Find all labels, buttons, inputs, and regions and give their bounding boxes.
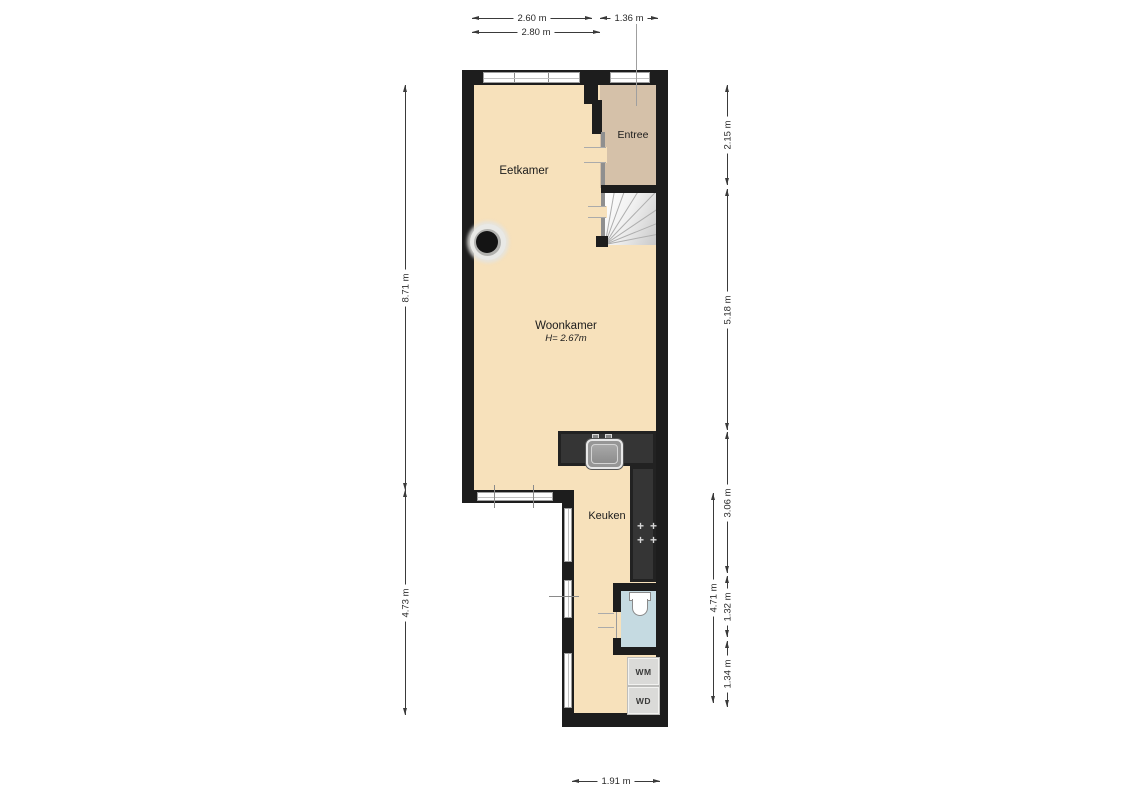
wall-left	[462, 70, 474, 503]
dimension-right-seg2: 5.18 m	[727, 189, 728, 430]
wall-entree-jog	[592, 100, 602, 134]
dryer-label: WD	[636, 696, 651, 706]
dimension-right-seg3: 3.06 m	[727, 432, 728, 573]
stove-burner-icon: +	[634, 533, 647, 547]
dimension-label: 8.71 m	[401, 269, 412, 306]
wood-stove-flue	[476, 231, 498, 253]
dimension-top-lower: 2.80 m	[472, 32, 600, 33]
dimension-top-upper-right: 1.36 m	[600, 18, 658, 19]
window-frame-divider	[548, 73, 549, 82]
sink-icon	[586, 439, 623, 469]
wall-bottom	[562, 713, 668, 727]
window-keuken-3	[564, 653, 572, 708]
window-frame-divider	[533, 485, 534, 508]
door-opening-entree	[599, 147, 607, 163]
wall-stair-stub	[596, 236, 608, 247]
dimension-label: 1.36 m	[610, 13, 647, 24]
dimension-right-seg1: 2.15 m	[727, 85, 728, 185]
extension-line	[636, 22, 637, 106]
dimension-label: 1.34 m	[723, 655, 734, 692]
window-top-entree	[610, 72, 650, 83]
dimension-label: 4.73 m	[401, 584, 412, 621]
sink-basin	[591, 444, 618, 464]
window-mid-step	[477, 492, 553, 501]
dryer: WD	[627, 686, 660, 715]
dimension-top-upper-left: 2.60 m	[472, 18, 592, 19]
door-opening-toilet	[613, 612, 621, 638]
dimension-left-lower: 4.73 m	[405, 490, 406, 715]
wall-right	[656, 70, 668, 727]
stove-burner-icon: +	[647, 533, 660, 547]
room-label-entree: Entree	[603, 129, 663, 141]
wall-toilet-bottom	[613, 647, 668, 655]
toilet-bowl-icon	[632, 599, 648, 616]
dimension-label: 1.32 m	[723, 588, 734, 625]
door-leaf-line	[616, 612, 617, 638]
dimension-label: 2.15 m	[723, 116, 734, 153]
floorplan-canvas: + + + + WM WD Eetkamer Entree Woonkamer …	[0, 0, 1131, 800]
window-top-eetkamer	[483, 72, 580, 83]
door-jamb-mark	[584, 147, 606, 148]
dimension-left-upper: 8.71 m	[405, 85, 406, 490]
room-label-woonkamer: Woonkamer	[516, 320, 616, 332]
door-jamb-mark	[598, 627, 614, 628]
window-keuken-2	[564, 580, 572, 618]
window-frame-divider	[549, 596, 579, 597]
room-label-woonkamer-height: H= 2.67m	[516, 333, 616, 344]
dimension-label: 3.06 m	[723, 484, 734, 521]
washing-machine-label: WM	[635, 667, 651, 677]
dimension-label: 4.71 m	[709, 579, 720, 616]
stove-burner-icon: +	[647, 519, 660, 533]
dimension-label: 2.60 m	[513, 13, 550, 24]
door-jamb-mark	[588, 217, 606, 218]
dimension-right-inner: 4.71 m	[713, 493, 714, 703]
dimension-label: 1.91 m	[597, 776, 634, 787]
room-label-eetkamer: Eetkamer	[474, 165, 574, 177]
window-frame-divider	[494, 485, 495, 508]
staircase	[605, 193, 656, 245]
dimension-label: 5.18 m	[723, 291, 734, 328]
stove-burners-icon: + + + +	[634, 519, 660, 547]
door-jamb-mark	[598, 613, 614, 614]
door-jamb-mark	[588, 206, 606, 207]
door-jamb-mark	[584, 162, 606, 163]
washing-machine: WM	[627, 657, 660, 686]
dimension-bottom: 1.91 m	[572, 781, 660, 782]
dimension-right-seg5: 1.34 m	[727, 641, 728, 707]
window-frame-divider	[514, 73, 515, 82]
dimension-right-seg4: 1.32 m	[727, 576, 728, 637]
dimension-label: 2.80 m	[517, 27, 554, 38]
room-label-keuken: Keuken	[567, 510, 647, 522]
wall-under-entree	[601, 185, 668, 193]
wall-toilet-top	[613, 583, 668, 591]
